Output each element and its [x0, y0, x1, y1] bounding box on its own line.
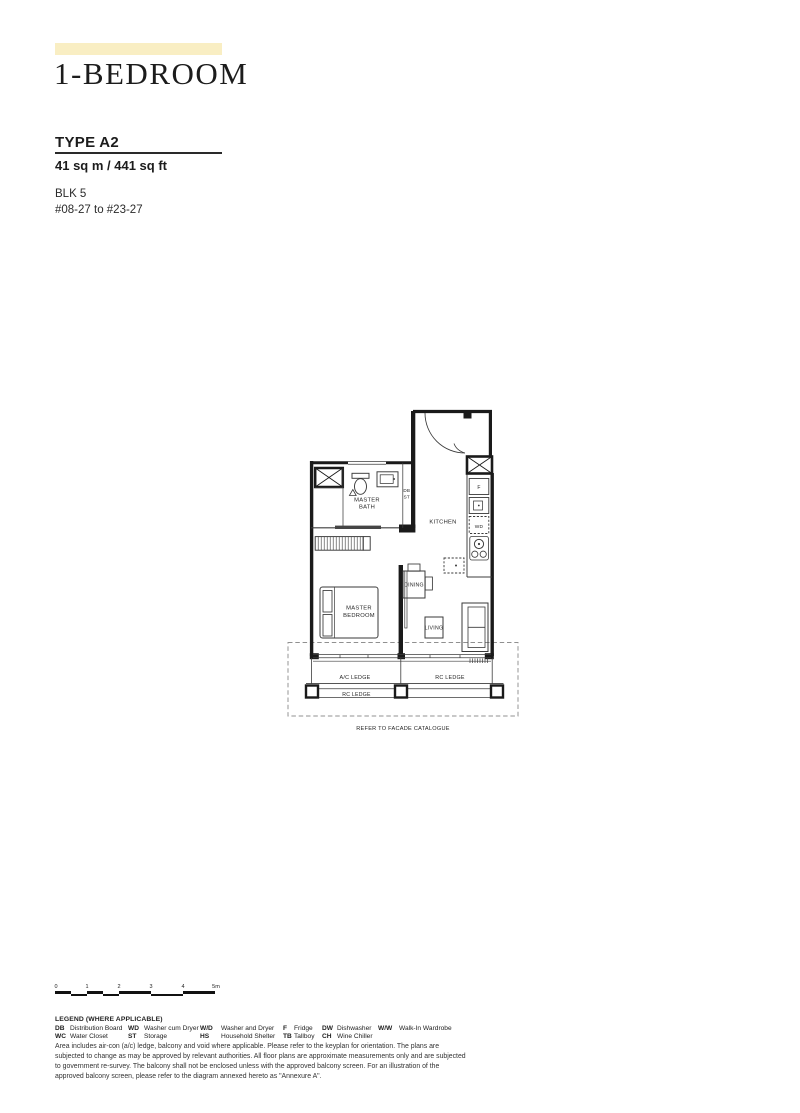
scale-segment — [103, 994, 119, 997]
legend-desc: Dishwasher — [337, 1025, 371, 1032]
legend-item: CHWine Chiller — [322, 1033, 378, 1041]
room-label-living: LIVING — [425, 625, 444, 631]
legend-desc: Tallboy — [294, 1033, 315, 1040]
legend-desc: Walk-In Wardrobe — [399, 1025, 452, 1032]
legend-item: DWDishwasher — [322, 1025, 378, 1033]
toilet-symbol — [352, 473, 369, 494]
kitchen-sink-symbol — [469, 498, 489, 514]
scale-tick-label: 0 — [54, 984, 57, 990]
legend-abbr: WC — [55, 1033, 70, 1041]
legend-item: DBDistribution Board — [55, 1025, 128, 1033]
block-label: BLK 5 — [55, 188, 86, 200]
scale-segment — [87, 991, 103, 994]
header-accent-bar — [55, 43, 222, 55]
scale-segment — [183, 991, 215, 994]
legend-item: W/WWalk-In Wardrobe — [378, 1025, 452, 1033]
scale-segment — [71, 994, 87, 997]
legend-abbr: ST — [128, 1033, 144, 1041]
unit-type-label: TYPE A2 — [55, 134, 119, 151]
structural-columns — [306, 686, 503, 698]
room-label-kitchen: KITCHEN — [429, 520, 456, 526]
legend-desc: Storage — [144, 1033, 167, 1040]
room-label-dining: DINING — [404, 582, 424, 588]
room-label-master-bedroom: MASTER — [346, 606, 372, 612]
room-label-master-bath: MASTER — [354, 498, 380, 504]
hob-symbol — [470, 537, 489, 561]
sliding-door-leaf — [405, 571, 407, 628]
label-st: ST — [404, 495, 410, 500]
legend-abbr: W/D — [200, 1025, 221, 1033]
entrance-door-arc — [425, 413, 465, 453]
legend-item: FFridge — [283, 1025, 322, 1033]
louver-hatch — [470, 659, 488, 664]
type-underline — [55, 152, 222, 154]
shaft-symbol — [467, 457, 492, 474]
label-ac-ledge: A/C LEDGE — [339, 675, 370, 681]
legend-abbr: W/W — [378, 1025, 399, 1033]
legend-title: LEGEND (WHERE APPLICABLE) — [55, 1016, 535, 1023]
scale-bar: 0 1 2 3 4 5m — [55, 984, 225, 1000]
legend-abbr: DB — [55, 1025, 70, 1033]
legend-abbr: WD — [128, 1025, 144, 1033]
room-label-master-bedroom-2: BEDROOM — [343, 613, 375, 619]
legend-desc: Washer cum Dryer — [144, 1025, 199, 1032]
scale-segment — [55, 991, 71, 994]
unit-range-label: #08-27 to #23-27 — [55, 204, 143, 216]
label-rc-ledge-bottom: RC LEDGE — [342, 692, 371, 698]
facade-note: REFER TO FACADE CATALOGUE — [356, 726, 450, 732]
scale-tick-label: 1 — [85, 984, 88, 990]
floorplan-page: 1-BEDROOM TYPE A2 41 sq m / 441 sq ft BL… — [0, 0, 800, 1113]
walls — [310, 410, 494, 659]
ac-unit-symbol — [315, 468, 343, 487]
label-db: DB — [403, 488, 410, 493]
legend-abbr: DW — [322, 1025, 337, 1033]
legend-desc: Washer and Dryer — [221, 1025, 274, 1032]
scale-tick-label: 2 — [117, 984, 120, 990]
legend-desc: Fridge — [294, 1025, 313, 1032]
scale-tick-label: 3 — [149, 984, 152, 990]
legend-desc: Wine Chiller — [337, 1033, 373, 1040]
legend-item: HSHousehold Shelter — [200, 1033, 283, 1041]
room-label-master-bath-2: BATH — [359, 505, 375, 511]
legend-item: TBTallboy — [283, 1033, 322, 1041]
legend-item: WDWasher cum Dryer — [128, 1025, 200, 1033]
floorplan-drawing: MASTER BATH DB ST KITCHEN MASTER BEDROOM… — [280, 395, 530, 740]
bath-threshold — [335, 526, 381, 529]
disclaimer-text: Area includes air-con (a/c) ledge, balco… — [55, 1042, 467, 1082]
unit-area: 41 sq m / 441 sq ft — [55, 158, 167, 173]
legend-abbr: F — [283, 1025, 294, 1033]
scale-tick-label: 4 — [181, 984, 184, 990]
dining-table-symbol — [403, 564, 432, 598]
legend-abbr: TB — [283, 1033, 294, 1041]
legend-desc: Water Closet — [70, 1033, 108, 1040]
wardrobe-symbol — [315, 537, 370, 551]
legend-abbr: CH — [322, 1033, 337, 1041]
basin-symbol — [377, 472, 398, 487]
island-counter-symbol — [444, 558, 464, 573]
scale-tick-label: 5m — [212, 984, 220, 990]
scale-segment — [151, 994, 183, 997]
page-title: 1-BEDROOM — [54, 56, 248, 92]
legend-item: WCWater Closet — [55, 1033, 128, 1041]
label-rc-ledge-right: RC LEDGE — [435, 675, 465, 681]
legend-item: W/DWasher and Dryer — [200, 1025, 283, 1033]
legend: LEGEND (WHERE APPLICABLE) DBDistribution… — [55, 1016, 535, 1040]
legend-abbr: HS — [200, 1033, 221, 1041]
legend-desc: Distribution Board — [70, 1025, 122, 1032]
sofa-symbol — [462, 603, 488, 652]
legend-desc: Household Shelter — [221, 1033, 275, 1040]
label-fridge: F — [477, 485, 480, 491]
legend-item: STStorage — [128, 1033, 200, 1041]
scale-segment — [119, 991, 151, 994]
label-washer-dryer: WD — [475, 524, 484, 530]
bedroom-partition-wall — [399, 565, 403, 657]
